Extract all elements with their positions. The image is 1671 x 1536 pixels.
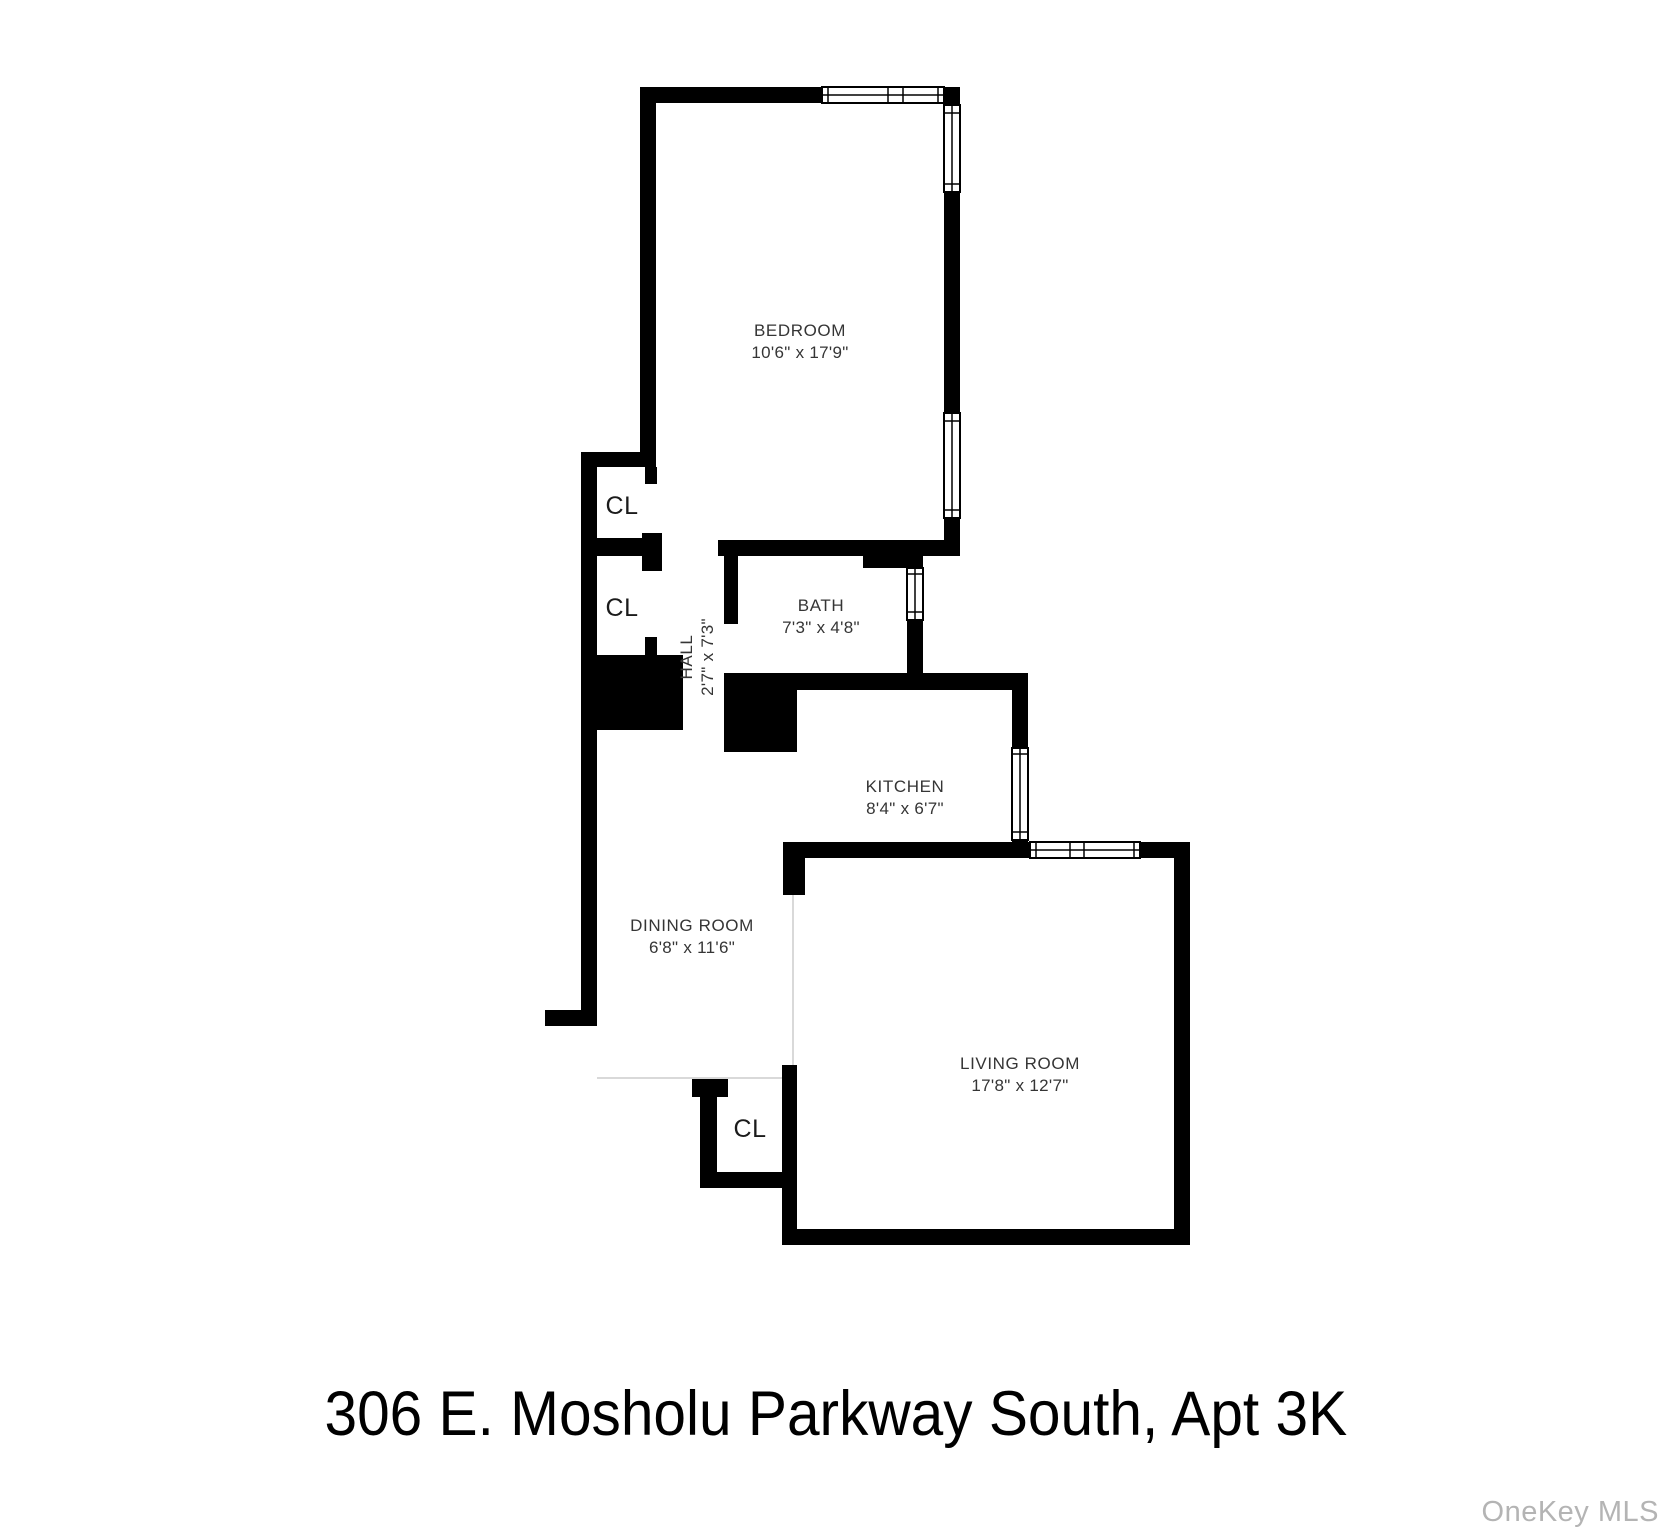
room-label-closet-lower: CL [606,594,639,622]
wall [545,1010,597,1026]
room-labels: BEDROOM10'6" x 17'9"BATH7'3" x 4'8"HALL2… [606,321,1080,1143]
room-dims-dining: 6'8" x 11'6" [649,938,735,957]
wall [1174,842,1190,1245]
wall [783,858,805,895]
room-label-closet-entry: CL [734,1115,767,1143]
room-label-dining: DINING ROOM [630,916,754,935]
wall [718,540,960,556]
room-label-hall: HALL [677,635,696,680]
plan-address-title: 306 E. Mosholu Parkway South, Apt 3K [0,1378,1671,1450]
plan-address-text: 306 E. Mosholu Parkway South, Apt 3K [324,1378,1347,1450]
wall [738,673,1028,690]
room-dims-kitchen: 8'4" x 6'7" [866,799,944,818]
room-dims-hall: 2'7" x 7'3" [698,618,717,696]
wall [581,655,683,730]
room-label-bedroom: BEDROOM [754,321,846,340]
window-icon [1012,748,1028,840]
wall [783,842,1028,858]
watermark-onekey-mls: OneKey MLS [1482,1496,1659,1529]
window-icon [944,413,960,518]
room-dims-bedroom: 10'6" x 17'9" [751,343,848,362]
floor-plan: BEDROOM10'6" x 17'9"BATH7'3" x 4'8"HALL2… [0,0,1671,1536]
room-label-bath: BATH [798,596,844,615]
window-icon [822,87,944,103]
room-label-closet-upper: CL [606,492,639,520]
floor-plan-svg: BEDROOM10'6" x 17'9"BATH7'3" x 4'8"HALL2… [0,0,1671,1536]
wall [782,1229,1190,1245]
wall [640,87,656,452]
wall [782,1065,797,1245]
room-dims-living: 17'8" x 12'7" [971,1076,1068,1095]
wall [700,1172,787,1188]
room-label-living: LIVING ROOM [960,1054,1080,1073]
window-icon [1030,842,1140,858]
room-label-kitchen: KITCHEN [866,777,945,796]
windows [822,87,1140,858]
wall [724,540,738,624]
wall [645,467,657,484]
window-icon [907,568,923,620]
room-dims-bath: 7'3" x 4'8" [782,618,860,637]
wall [692,1079,728,1097]
wall [645,556,657,571]
walls [545,87,1190,1245]
window-icon [944,105,960,192]
